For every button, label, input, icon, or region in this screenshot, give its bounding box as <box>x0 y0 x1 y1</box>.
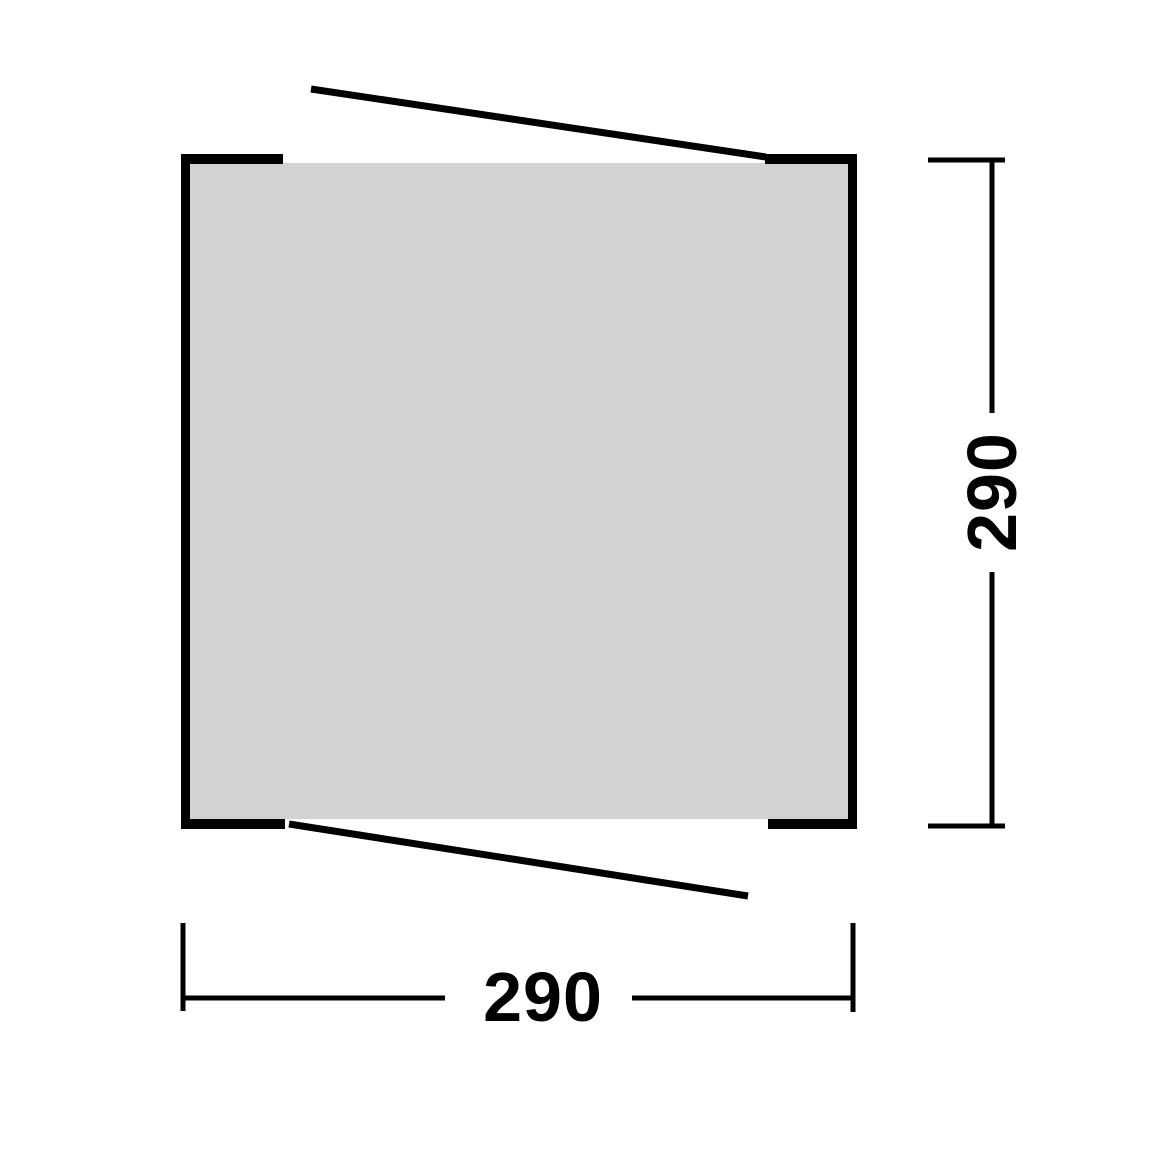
floorplan-diagram: 290 290 <box>0 0 1176 1176</box>
wall-top-left-segment <box>181 154 283 164</box>
wall-bottom-right-segment <box>768 819 857 829</box>
door-flap-line-top <box>311 89 766 157</box>
wall-left <box>181 154 190 829</box>
wall-bottom-left-segment <box>181 819 285 829</box>
footprint-area <box>189 163 849 819</box>
wall-top-right-segment <box>765 154 857 164</box>
door-flap-line-bottom <box>289 824 748 896</box>
width-dimension-label: 290 <box>483 962 603 1032</box>
wall-right <box>848 154 857 829</box>
height-dimension-label: 290 <box>957 432 1027 552</box>
